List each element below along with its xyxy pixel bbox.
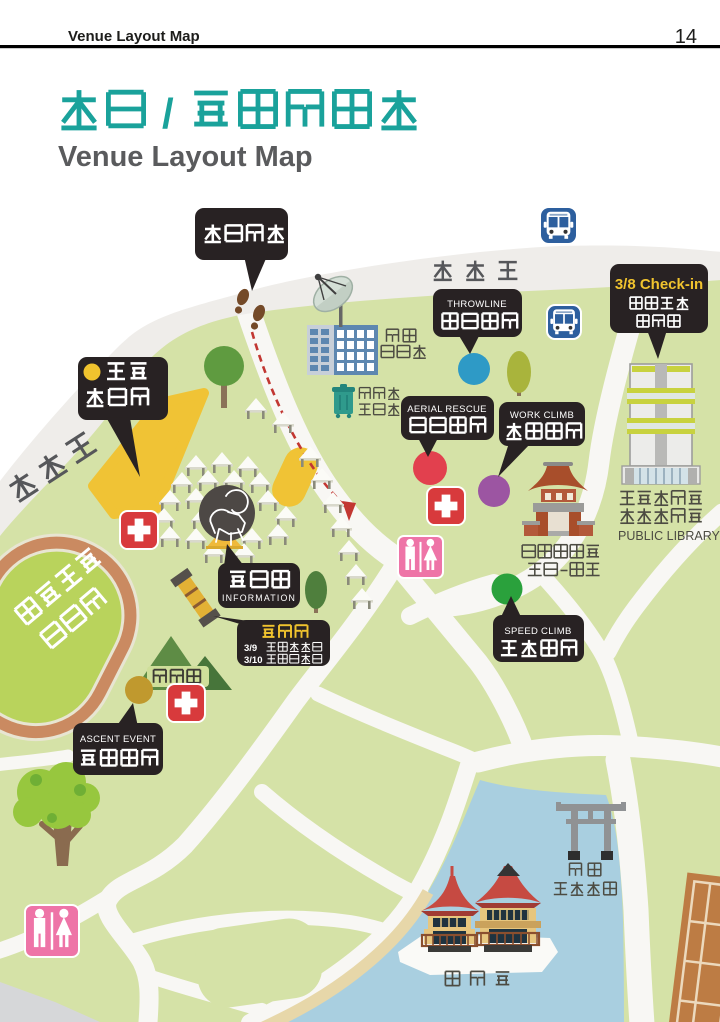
svg-text:Venue Layout Map: Venue Layout Map <box>68 28 200 45</box>
svg-text:INFORMATION: INFORMATION <box>222 593 296 603</box>
svg-text:14: 14 <box>675 26 697 48</box>
svg-text:AERIAL RESCUE: AERIAL RESCUE <box>407 404 487 415</box>
svg-text:WORK CLIMB: WORK CLIMB <box>510 410 574 421</box>
svg-text:PUBLIC LIBRARY: PUBLIC LIBRARY <box>618 529 720 543</box>
svg-text:ASCENT EVENT: ASCENT EVENT <box>80 734 156 745</box>
svg-text:SPEED CLIMB: SPEED CLIMB <box>504 626 571 637</box>
svg-text:3/10: 3/10 <box>244 655 263 666</box>
svg-text:3/8 Check-in: 3/8 Check-in <box>615 276 703 293</box>
svg-text:3/9: 3/9 <box>244 643 257 654</box>
svg-text:Venue Layout Map: Venue Layout Map <box>58 141 313 173</box>
svg-text:/: / <box>162 90 174 137</box>
svg-text:THROWLINE: THROWLINE <box>447 299 507 310</box>
